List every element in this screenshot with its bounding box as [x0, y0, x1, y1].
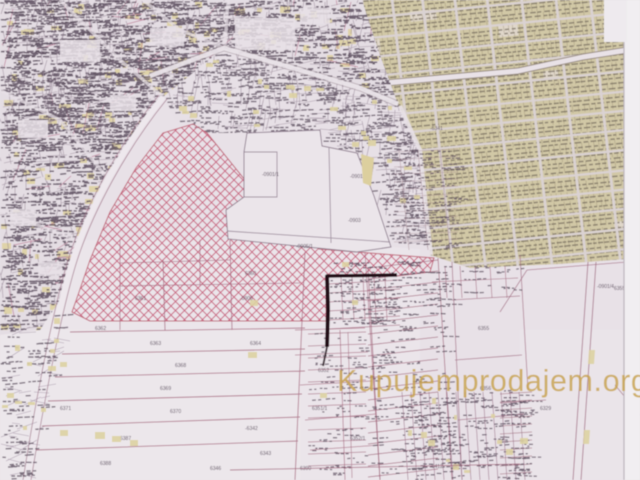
svg-text:6361: 6361 — [135, 296, 146, 302]
svg-text:6329: 6329 — [540, 406, 551, 412]
svg-text:6352/1: 6352/1 — [350, 436, 366, 442]
svg-text:6352: 6352 — [318, 368, 329, 374]
svg-text:6362: 6362 — [95, 326, 106, 332]
svg-text:6346: 6346 — [210, 466, 221, 472]
svg-text:-0901/1: -0901/1 — [262, 172, 279, 178]
svg-text:-0905/1: -0905/1 — [296, 244, 313, 250]
svg-text:6388: 6388 — [100, 461, 111, 467]
svg-text:6351/1: 6351/1 — [312, 406, 328, 412]
svg-text:6360: 6360 — [245, 271, 256, 277]
svg-text:6371: 6371 — [60, 406, 71, 412]
svg-text:6390: 6390 — [300, 466, 311, 472]
svg-text:6370: 6370 — [170, 409, 181, 415]
svg-text:6363: 6363 — [150, 341, 161, 347]
svg-text:-0901/4: -0901/4 — [597, 284, 614, 290]
svg-text:Kupujemprodajem.org: Kupujemprodajem.org — [337, 364, 640, 398]
svg-text:6387: 6387 — [120, 436, 131, 442]
svg-text:-6342: -6342 — [245, 426, 258, 432]
svg-text:-0903: -0903 — [348, 218, 361, 224]
svg-text:6368: 6368 — [175, 363, 186, 369]
svg-text:-6412: -6412 — [430, 464, 443, 470]
svg-text:-6341: -6341 — [430, 126, 443, 132]
svg-text:6355: 6355 — [478, 326, 489, 332]
svg-text:6364: 6364 — [250, 341, 261, 347]
svg-text:6369: 6369 — [160, 386, 171, 392]
svg-text:6343: 6343 — [260, 451, 271, 457]
